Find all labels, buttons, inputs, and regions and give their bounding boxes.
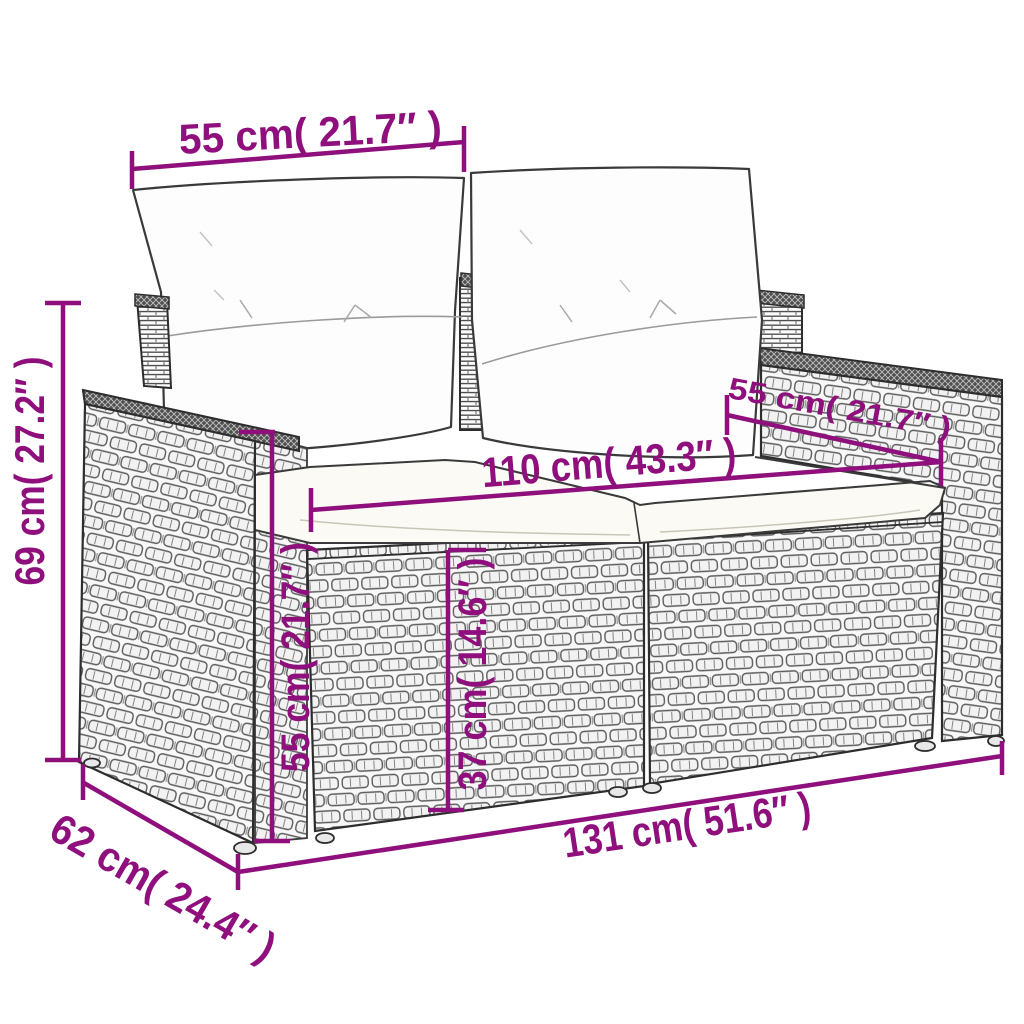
svg-text:55 cm( 21.7″ ): 55 cm( 21.7″ ) [274, 542, 318, 772]
svg-text:69 cm( 27.2″ ): 69 cm( 27.2″ ) [6, 357, 53, 586]
svg-text:37 cm( 14.6″ ): 37 cm( 14.6″ ) [451, 558, 495, 791]
